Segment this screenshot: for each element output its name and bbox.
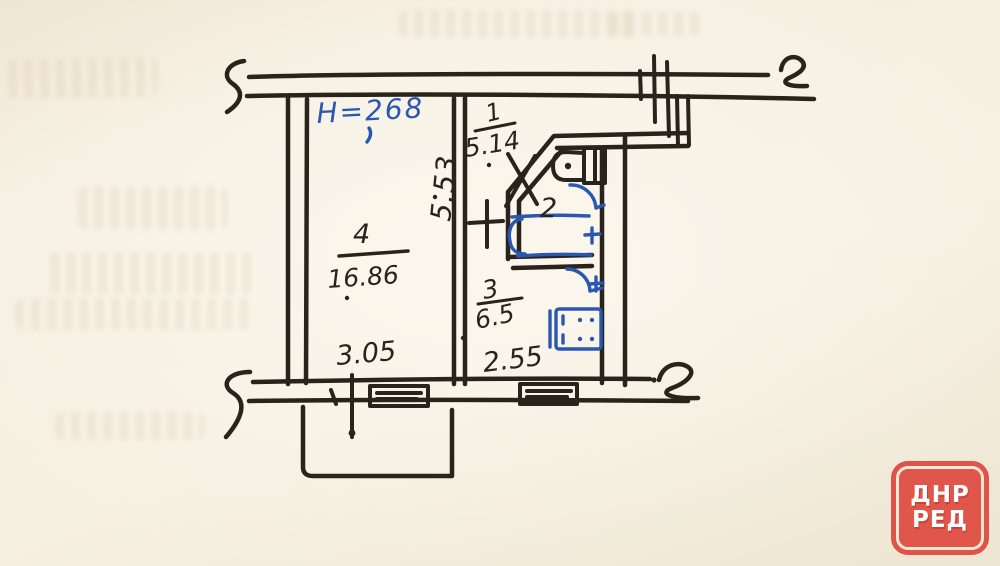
watermark-stamp: ДНР РЕД [891,461,989,555]
watermark-text-bottom: РЕД [912,509,968,532]
balcony-outline [303,407,452,476]
ink-dot [433,195,437,199]
fraction-bar-room4 [339,251,408,256]
wall-break-symbol-bottom-right [659,364,698,398]
left-exterior-wall [288,97,307,384]
dimension-tick-bottom [331,375,352,437]
ceiling-height-label: H=268 [316,91,426,130]
watermark-stamp-panel: ДНР РЕД [899,469,981,547]
room1-area: 5.14 [462,126,522,163]
room4-area: 16.86 [326,260,399,294]
room2-number: 2 [540,193,557,224]
bottom-exterior-wall [249,379,688,401]
hall-kitchen-tick [469,201,503,247]
room1-number: 1 [483,97,505,128]
stove-icon [550,309,601,349]
bathroom-top-wall [554,133,688,148]
ink-dot [487,163,491,167]
window-room4 [370,386,428,406]
watermark-text-top: ДНР [910,484,970,507]
ink-dot [461,336,465,340]
wall-break-symbol-bottom-left [226,372,250,437]
room4-number: 4 [353,219,370,250]
wall-break-symbol-top-left [227,61,244,112]
floor-plan-drawing: H=268 5.53 1 5.14 2 3 6.5 4 16.86 3.05 2… [0,0,1000,566]
toilet-icon [553,148,605,183]
blue-comma-mark [367,128,371,142]
door-arc-kitchen-icon [567,269,603,291]
room4-width-label: 3.05 [335,336,398,372]
door-arc-bathroom-icon [570,185,604,208]
ink-dot [345,296,349,300]
wall-break-symbol-top-right [781,57,807,86]
dimension-depth-label: 5.53 [424,153,464,222]
kitchen-width-label: 2.55 [481,341,544,379]
